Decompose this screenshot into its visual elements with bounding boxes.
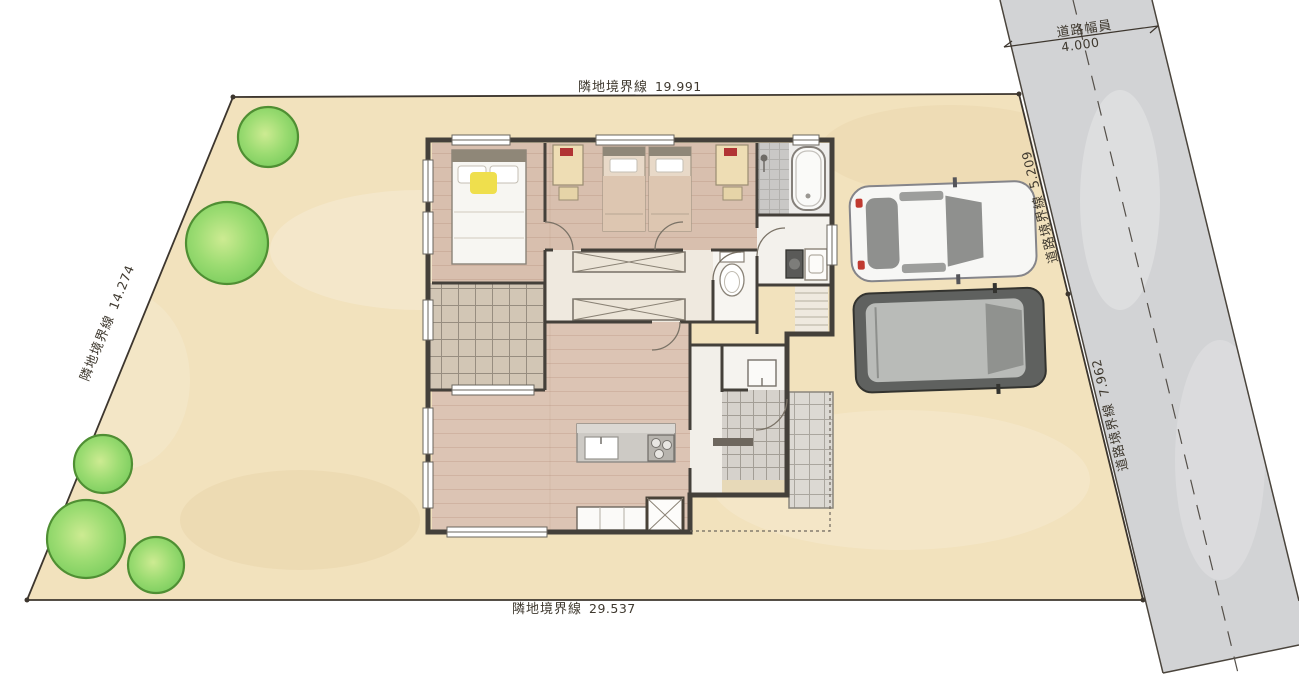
car-mirror: [953, 177, 957, 187]
floor-hatch: [647, 498, 683, 532]
tree: [238, 107, 298, 167]
kitchen-island: [577, 424, 675, 462]
desk-book: [560, 148, 573, 156]
kitchen-stove: [648, 435, 674, 461]
tree: [74, 435, 132, 493]
car-mirror: [956, 274, 960, 284]
suv-windshield: [985, 302, 1023, 374]
bed-single-1: [603, 147, 645, 231]
bathtub: [792, 147, 825, 210]
site-plan-page: 隣地境界線19.991 隣地境界線29.537 隣地境界線14.274 道路境界…: [0, 0, 1299, 691]
car-taillight: [855, 199, 862, 208]
bed-accent-pillow: [470, 172, 497, 194]
car-rear-window: [865, 197, 899, 269]
car-gray-suv: [853, 281, 1047, 399]
bed-master: [452, 150, 526, 264]
washing-machine: [786, 250, 803, 278]
car-windshield: [945, 194, 983, 266]
boundary-label-top: 隣地境界線19.991: [578, 79, 702, 95]
site-plan-svg: 隣地境界線19.991 隣地境界線29.537 隣地境界線14.274 道路境界…: [0, 0, 1299, 691]
genkan-bench: [713, 438, 753, 446]
suv-mirror: [993, 283, 997, 293]
entrance-hall: [690, 345, 722, 495]
suv-mirror: [996, 384, 1000, 394]
tree: [186, 202, 268, 284]
washbasin: [805, 249, 827, 280]
tree: [128, 537, 184, 593]
bed-single-2: [649, 147, 691, 231]
tree: [47, 500, 125, 578]
tv-board: [577, 507, 647, 530]
boundary-label-bottom: 隣地境界線29.537: [512, 601, 636, 617]
desk-book: [724, 148, 737, 156]
car-taillight: [858, 261, 865, 270]
entrance-cabinet: [748, 360, 776, 386]
car-white-sedan: [849, 175, 1038, 288]
